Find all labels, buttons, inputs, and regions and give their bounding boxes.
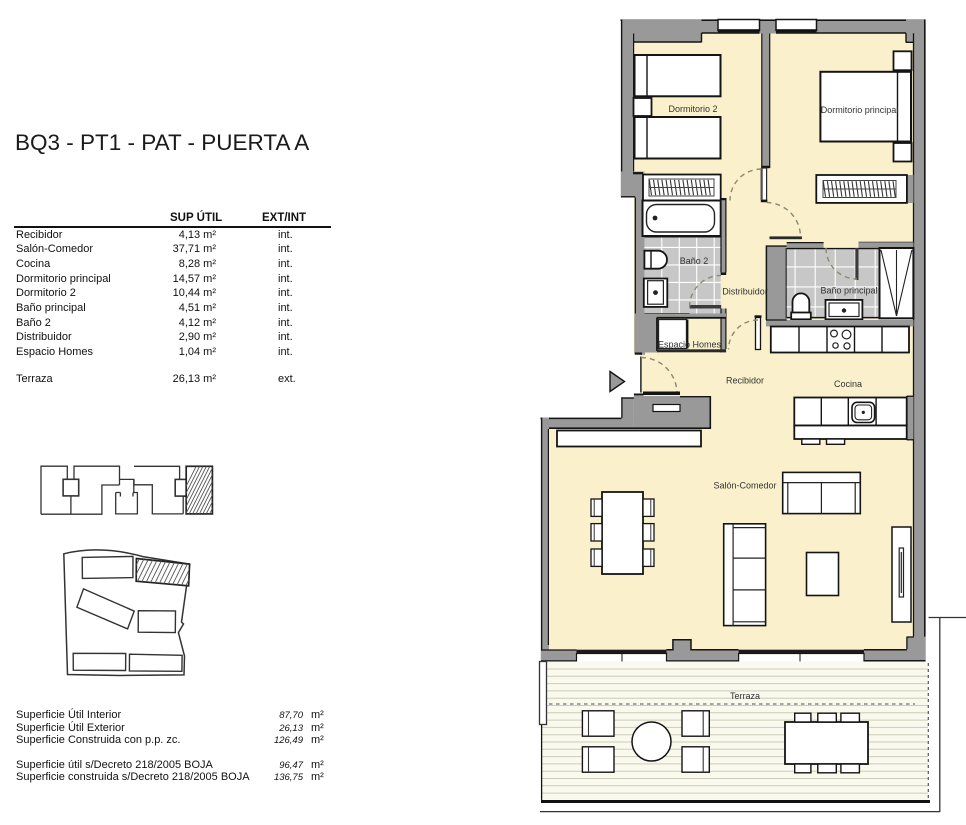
svg-text:Recibidor: Recibidor [726,376,764,386]
svg-text:Terraza: Terraza [730,691,760,701]
svg-text:Espacio Homes: Espacio Homes [658,340,722,350]
svg-text:Baño 2: Baño 2 [680,256,709,266]
svg-text:Distribuidor: Distribuidor [722,287,768,297]
svg-text:Baño principal: Baño principal [820,286,877,296]
svg-text:Cocina: Cocina [834,379,862,389]
svg-text:Salón-Comedor: Salón-Comedor [713,481,776,491]
svg-text:Dormitorio 2: Dormitorio 2 [668,104,717,114]
svg-text:Dormitorio principal: Dormitorio principal [821,105,899,115]
